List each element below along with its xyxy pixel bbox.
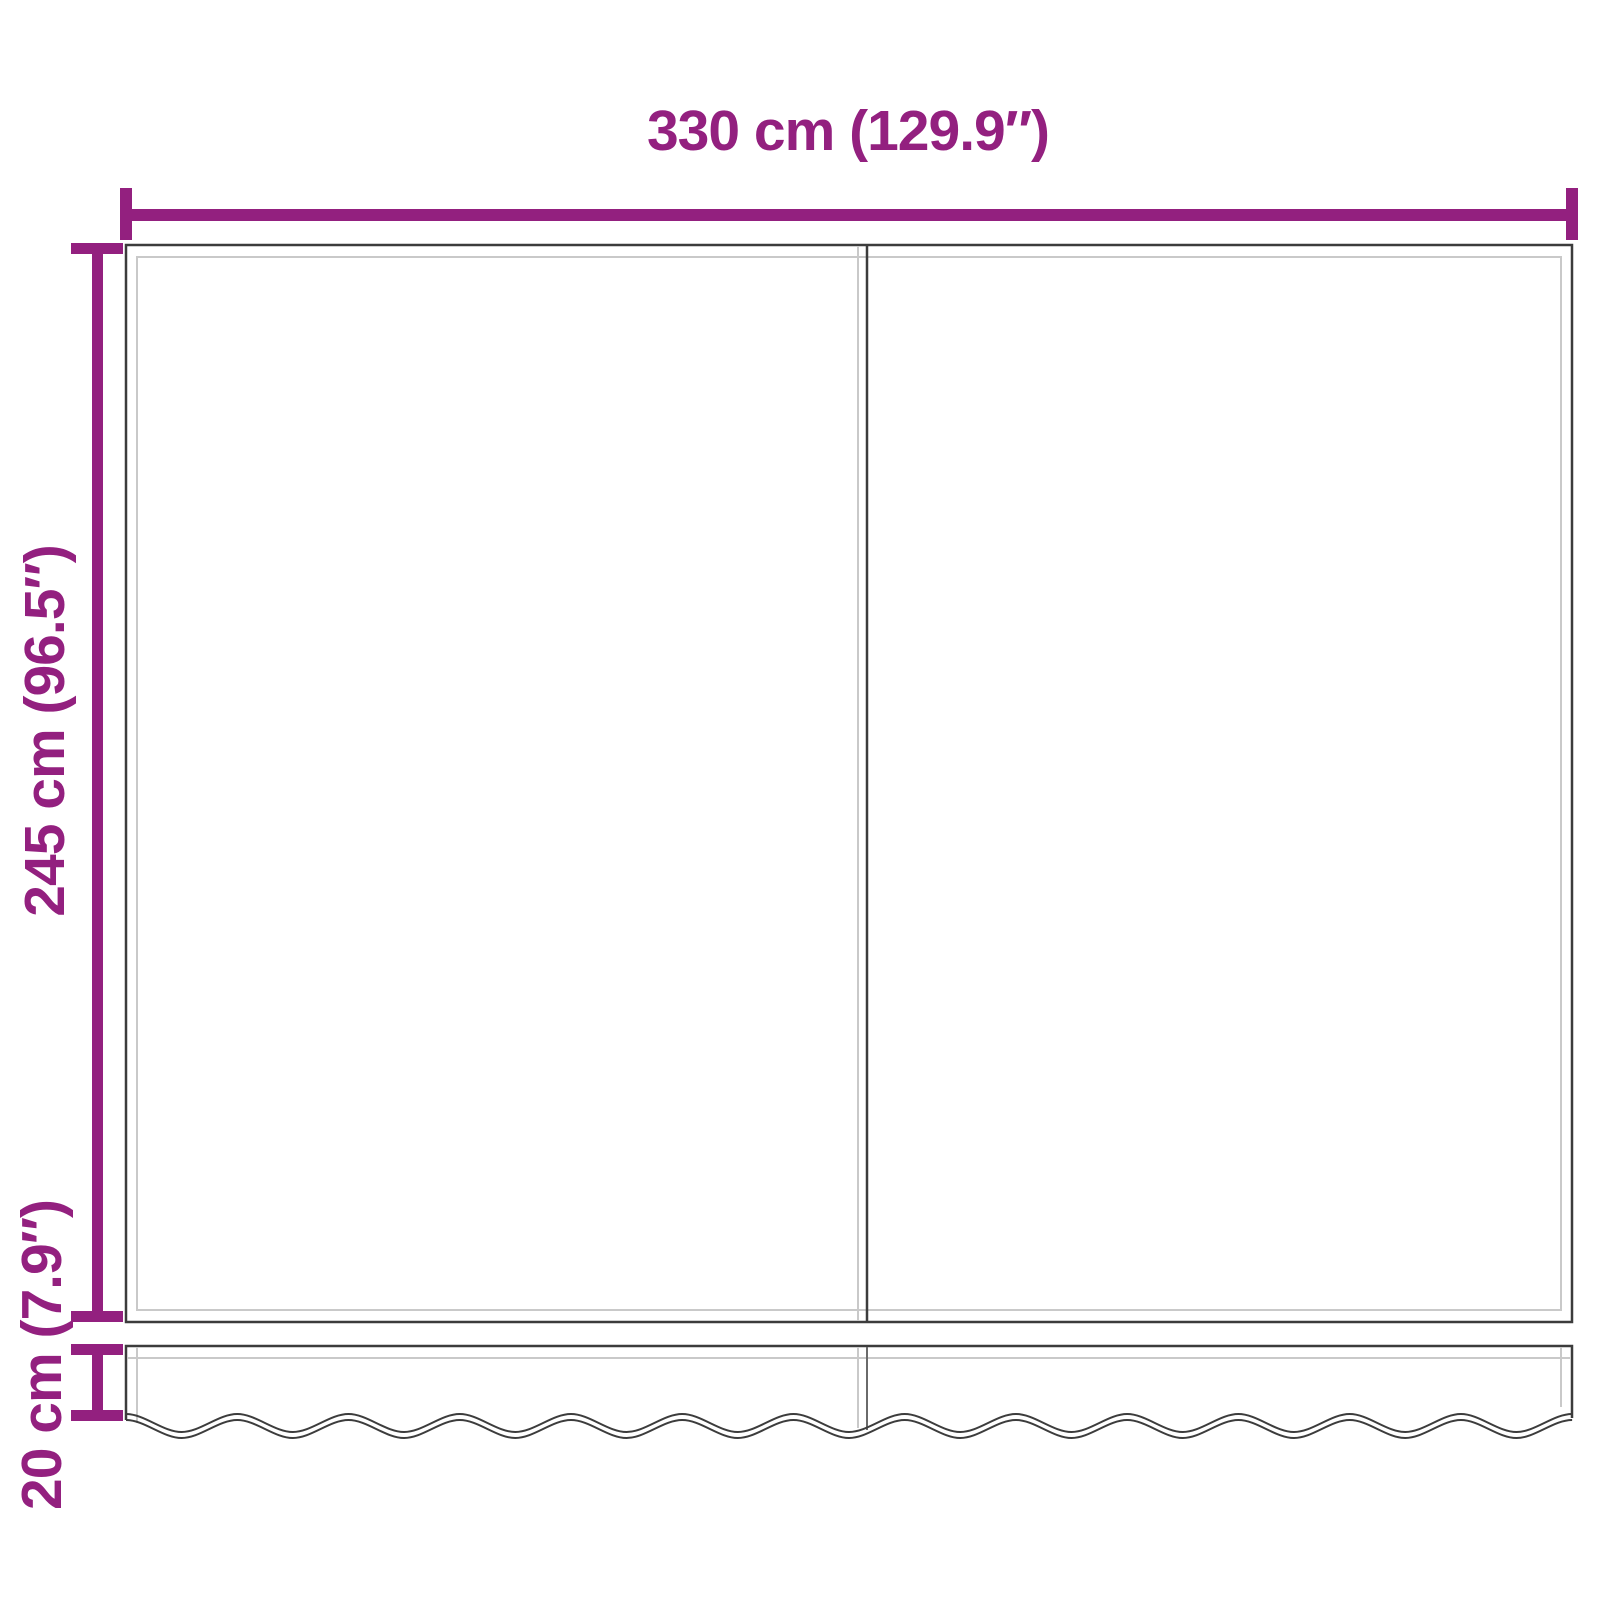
width-dimension-tick-left — [120, 188, 132, 240]
fabric-inner-seam — [137, 257, 1561, 1310]
awning-fabric-drawing — [0, 0, 1600, 1600]
valance-dimension-tick-top — [71, 1344, 123, 1355]
valance-dimension-line — [92, 1355, 103, 1410]
height-dimension-tick-top — [71, 243, 123, 254]
width-dimension-line — [132, 209, 1566, 221]
valance-wavy-edge-inner — [126, 1420, 1572, 1438]
product-dimension-diagram: 330 cm (129.9″) 245 cm (96.5″) 20 cm (7.… — [0, 0, 1600, 1600]
width-dimension-tick-right — [1566, 188, 1578, 240]
height-dimension-tick-bottom — [71, 1311, 123, 1322]
height-dimension-line — [92, 254, 103, 1311]
valance-dimension-tick-bottom — [71, 1410, 123, 1421]
valance-dimension-label: 20 cm (7.9″) — [11, 1055, 73, 1600]
width-dimension-label: 330 cm (129.9″) — [598, 100, 1098, 162]
valance-wavy-edge-outer — [126, 1414, 1572, 1432]
height-dimension-label: 245 cm (96.5″) — [14, 431, 76, 1031]
fabric-outline — [126, 245, 1572, 1322]
